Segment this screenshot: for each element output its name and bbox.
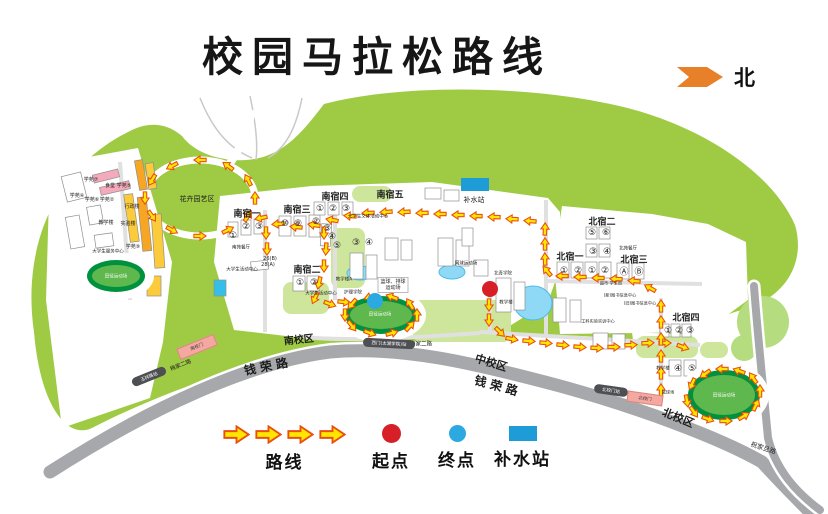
circled-number: ③ [342,204,350,214]
circled-number: ⑨ [294,219,302,229]
circled-number: ④ [365,238,373,248]
circled-number: ⑩ [281,219,289,229]
circled-number: ① [296,278,304,288]
campus-path [228,110,252,166]
lawn [636,336,698,358]
building [496,278,511,312]
circled-number: ① [229,231,237,241]
lawn [283,282,329,314]
map-label: (新)图书信息中心 [604,292,637,297]
pond [439,265,465,279]
north-label: 北 [734,62,755,92]
map-label: 南宿四 [321,193,348,204]
legend-water: 补水站 [494,426,551,470]
map-label: 学苑⑦ [84,177,98,183]
map-label: 花卉园艺区 [180,195,215,203]
building [214,280,226,296]
map-label: 实验楼 [120,221,135,227]
circled-number: ② [601,266,609,276]
circled-number: ① [588,266,596,276]
map-label: 28(A) [261,262,275,268]
water-station-icon [509,426,537,441]
route-arrow-icon [557,340,570,349]
building [514,282,525,310]
map-legend: 路线 起点 终点 补水站 [0,420,828,480]
map-label: 超市·学生街 [600,280,622,285]
circled-number: ③ [686,326,694,336]
page-title: 校园马拉松路线 [202,23,552,83]
map-label: 篮球场 [662,389,675,394]
circled-number: ② [242,222,250,232]
lawn [700,342,728,358]
map-label: 北青学院 [494,271,512,276]
map-label: 护理学院 [344,290,362,295]
building [350,253,363,279]
map-label: 工科实验实训中心 [581,318,615,323]
map-label: 田径运动场 [713,393,736,398]
building [553,298,566,322]
map-label: 田径运动场 [369,312,392,317]
circled-number: ③ [589,247,597,257]
building [366,255,377,279]
map-label: 北宿四 [672,314,699,325]
end-point-icon [449,425,466,442]
map-label: 大学生文体活动中心 [348,214,389,219]
building [444,190,459,201]
map-label: 南宿一 [233,210,260,221]
circled-number: ① [316,204,324,214]
map-label: 北宿一 [556,253,583,264]
marathon-map-page: 校园马拉松路线 北 路线 起点 终点 补水站 花卉园艺区南宿 [0,0,828,514]
map-label: 补水站 [464,196,485,204]
circled-number: ⑤ [588,228,596,238]
legend-start: 起点 [372,424,410,472]
building [401,240,412,260]
legend-end-label: 终点 [438,446,476,471]
route-arrow-icon [523,336,536,345]
map-label: 网球运动场 [455,261,478,266]
legend-water-label: 补水站 [494,445,551,470]
map-label: 南苑餐厅 [232,245,250,250]
map-label: 教学楼 [98,220,113,226]
map-label: 北苑餐厅 [619,246,637,251]
circled-number: ④ [674,364,682,374]
circled-number: ⑤ [688,364,696,374]
start-marker [482,281,498,297]
map-label: 大学生服务中心 [92,249,124,254]
circled-number: ① [664,326,672,336]
legend-end: 终点 [438,425,476,471]
map-label: 大学生活动中心 [226,267,258,272]
legend-start-label: 起点 [372,447,410,472]
route-arrow-icon [223,425,346,444]
map-label: 学苑② [100,197,114,203]
circled-number: ④ [603,247,611,257]
map-label: 学苑⑤ [117,183,131,189]
building [438,238,453,266]
circled-number: ⑤ [333,241,341,251]
building [425,188,441,199]
map-label: 教学楼A [336,277,353,282]
map-label: 学苑④ [70,193,84,199]
circled-number: ② [574,266,582,276]
circled-number: ② [675,326,683,336]
map-label: (旧)图书信息中心 [624,300,657,305]
legend-route: 路线 [223,425,346,473]
circled-number: Ⓐ [619,265,628,278]
building [385,238,398,260]
north-arrow-icon [676,65,726,89]
map-label: 食堂 [105,183,115,189]
start-point-icon [382,424,401,443]
circled-number: Ⓑ [634,265,643,278]
map-label: 学苑⑨ [126,244,140,250]
map-label: 田径运动场 [105,274,128,279]
circled-number: ② [329,204,337,214]
compass: 北 [676,62,755,92]
circled-number: ① [560,266,568,276]
map-label: 南宿五 [376,191,403,202]
map-label: 南宿二 [293,266,320,277]
legend-route-label: 路线 [266,448,304,473]
map-label: 教学楼 [656,366,670,371]
map-label: 行政楼 [124,204,139,210]
circled-number: ② [312,217,320,227]
building [94,233,114,248]
map-label: 篮球、排球 运动场 [377,277,408,293]
circled-number: ② [310,278,318,288]
circled-number: ③ [255,222,263,232]
map-label: 教学楼 [499,300,513,305]
end-marker [367,293,383,309]
map-label: 学苑⑥ [85,197,99,203]
circled-number: ⑥ [602,228,610,238]
route-arrow-icon [540,338,553,347]
map-label: 南宿三 [283,206,310,217]
circled-number: ③ [352,238,360,248]
map-label: 北宿二 [588,218,615,229]
route-arrow-icon [574,342,587,351]
water-station-marker [461,178,489,191]
map-label: 大学生活动中心 [305,291,337,296]
building [570,300,581,322]
building [462,228,473,246]
